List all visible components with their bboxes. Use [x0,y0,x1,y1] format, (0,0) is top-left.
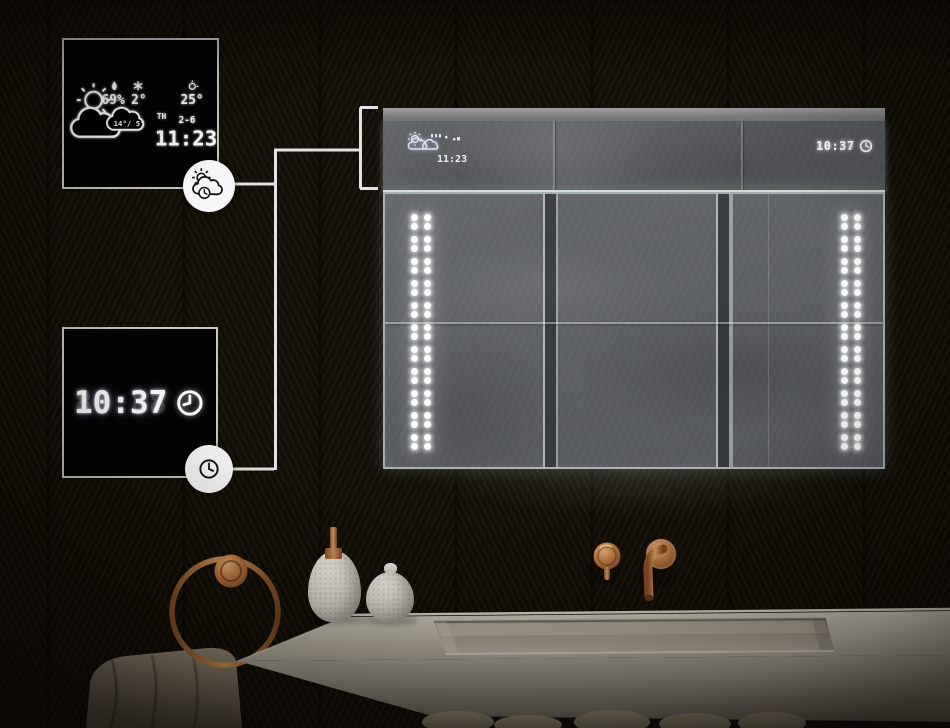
forecast-range: 14°/ 5° [114,119,145,128]
outdoor-temp-value: 2° [131,93,146,108]
led-strip-left [411,214,431,450]
led-dot [411,267,418,274]
weather-station-icon [189,166,229,206]
led-dot [841,236,848,243]
led-dot [411,280,418,287]
led-group [841,258,861,274]
snowflake-icon [134,81,142,90]
led-dot [424,355,431,362]
ghost-segments: 88:88 [74,385,167,421]
weather-station-badge [183,160,235,212]
led-dot [841,214,848,221]
led-dot [841,355,848,362]
led-dot [411,368,418,375]
led-dot [854,355,861,362]
led-group [411,302,431,318]
led-dot [854,390,861,397]
led-group [411,258,431,274]
led-dot [424,245,431,252]
door-seam [543,194,558,467]
led-dot [841,368,848,375]
led-dot [411,377,418,384]
sink-basin [434,619,834,654]
led-dot [411,333,418,340]
hand-towel [86,648,242,728]
humidity-drop-icon [112,81,117,90]
led-group [841,412,861,428]
led-group [841,214,861,230]
led-dot [854,289,861,296]
led-dot [424,280,431,287]
led-dot [854,421,861,428]
clock-icon [859,139,873,153]
band-seam [741,121,743,190]
led-group [411,412,431,428]
led-dot [411,421,418,428]
led-dot [841,399,848,406]
led-dot [841,267,848,274]
led-dot [411,434,418,441]
led-group [411,434,431,450]
led-dot [411,223,418,230]
led-dot [424,443,431,450]
clock-digits: 88:88 10:37 [74,385,167,421]
led-dot [424,346,431,353]
led-dot [854,280,861,287]
led-dot [411,390,418,397]
mirror-doors [383,192,885,469]
led-dot [411,214,418,221]
led-dot [841,258,848,265]
led-group [841,324,861,340]
led-dot [411,324,418,331]
led-dot [411,245,418,252]
led-dot [841,280,848,287]
led-dot [854,267,861,274]
led-dot [854,443,861,450]
led-group [841,368,861,384]
led-group [841,390,861,406]
led-dot [411,399,418,406]
indoor-temp-value: 25° [180,93,203,108]
led-dot [841,412,848,419]
led-group [411,324,431,340]
clock-dial-icon [174,386,206,420]
led-group [411,280,431,296]
led-dot [854,377,861,384]
led-dot [411,355,418,362]
led-dot [411,236,418,243]
led-dot [424,434,431,441]
led-dot [841,302,848,309]
cabinet-top-trim [383,108,885,122]
led-dot [841,245,848,252]
led-group [841,280,861,296]
led-group [841,346,861,362]
weekday-label: TH [157,112,167,121]
clock-icon [191,451,227,487]
led-dot [841,390,848,397]
led-dot [841,434,848,441]
led-dot [841,443,848,450]
led-dot [854,324,861,331]
led-dot [424,267,431,274]
led-dot [424,377,431,384]
led-dot [854,346,861,353]
led-dot [424,412,431,419]
led-dot [841,311,848,318]
led-dot [411,258,418,265]
led-dot [841,289,848,296]
weather-time: 11:23 [155,127,217,151]
led-dot [424,399,431,406]
date-label: 2-6 [179,115,196,126]
led-dot [424,258,431,265]
led-group [411,214,431,230]
door-seam [716,194,733,467]
sun-icon [85,92,102,109]
led-group [411,346,431,362]
dispenser-pump-collar [325,548,342,559]
led-dot [854,302,861,309]
led-dot [424,333,431,340]
led-dot [854,245,861,252]
led-dot [424,302,431,309]
led-dot [411,346,418,353]
mirror-weather-display: 11:23 [407,130,471,168]
led-dot [411,443,418,450]
band-seam [553,121,555,190]
led-dot [841,377,848,384]
led-dot [841,324,848,331]
led-group [411,390,431,406]
indoor-temp-icon [189,80,198,89]
led-dot [854,236,861,243]
led-group [841,434,861,450]
led-dot [854,214,861,221]
led-dot [424,223,431,230]
mirror-cabinet: 11:23 88:88 10:37 [383,108,885,469]
led-dot [854,434,861,441]
led-dot [854,412,861,419]
led-dot [424,214,431,221]
door-seam-faint [768,194,769,467]
clock-display: 88:88 10:37 [74,385,206,421]
led-dot [411,289,418,296]
led-group [841,236,861,252]
led-dot [424,368,431,375]
led-dot [841,346,848,353]
faucet [583,540,677,602]
mirror-clock-digits: 88:88 10:37 [816,139,855,153]
led-group [411,236,431,252]
mirror-weather-time: 11:23 [437,154,467,165]
led-group [411,368,431,384]
led-dot [841,421,848,428]
bathroom-product-photo: 11:23 88:88 10:37 [0,0,950,728]
led-dot [854,258,861,265]
led-dot [854,368,861,375]
led-dot [411,302,418,309]
mirror-clock-display: 88:88 10:37 [816,139,873,153]
led-dot [424,324,431,331]
led-dot [411,311,418,318]
led-group [841,302,861,318]
led-dot [854,333,861,340]
humidity-value: 69% [102,93,125,108]
cotton-jar [366,572,414,622]
horizontal-seam [385,322,883,324]
led-dot [854,311,861,318]
led-dot [411,412,418,419]
led-dot [854,223,861,230]
led-strip-right [841,214,861,450]
towel-ring [172,555,278,666]
ghost-segments: 88:88 [816,139,855,153]
weather-mini-icons [431,134,460,140]
led-dot [424,311,431,318]
led-dot [424,390,431,397]
led-dot [854,399,861,406]
led-dot [841,333,848,340]
clock-badge [185,445,233,493]
led-dot [841,223,848,230]
led-dot [424,236,431,243]
led-dot [424,421,431,428]
led-dot [424,289,431,296]
